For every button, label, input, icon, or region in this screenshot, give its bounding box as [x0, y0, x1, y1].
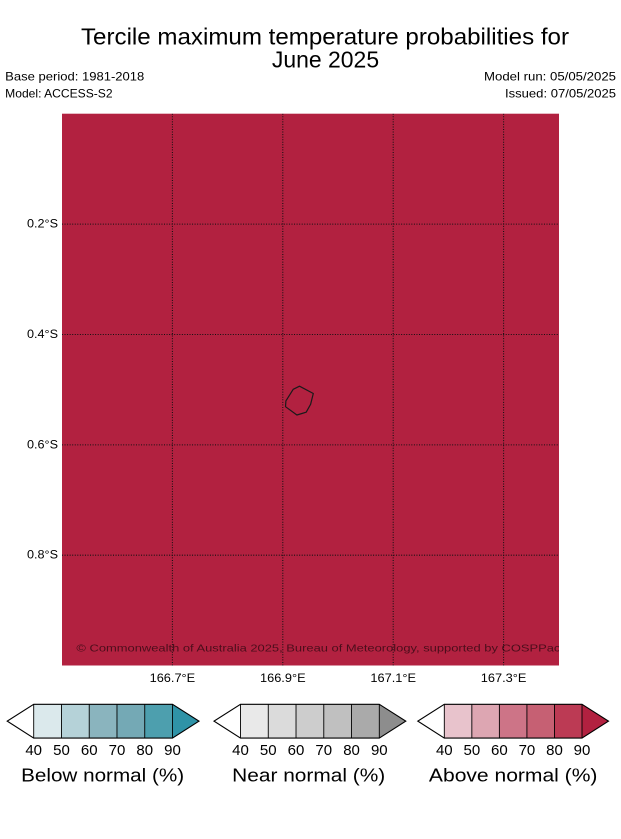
svg-text:166.9°E: 166.9°E: [260, 671, 306, 685]
svg-text:0.4°S: 0.4°S: [27, 327, 58, 341]
svg-text:40: 40: [232, 742, 249, 759]
svg-text:60: 60: [288, 742, 305, 759]
svg-text:167.1°E: 167.1°E: [370, 671, 416, 685]
svg-text:© Commonwealth of Australia 20: © Commonwealth of Australia 2025, Bureau…: [76, 644, 560, 655]
svg-text:0.8°S: 0.8°S: [27, 548, 58, 562]
svg-text:60: 60: [81, 742, 98, 759]
svg-text:0.2°S: 0.2°S: [27, 217, 58, 231]
svg-text:166.7°E: 166.7°E: [150, 671, 196, 685]
svg-text:80: 80: [546, 742, 563, 759]
svg-text:Near normal (%): Near normal (%): [232, 766, 385, 787]
svg-text:50: 50: [260, 742, 277, 759]
svg-text:50: 50: [53, 742, 70, 759]
svg-text:40: 40: [25, 742, 42, 759]
svg-text:70: 70: [519, 742, 536, 759]
svg-text:80: 80: [343, 742, 360, 759]
svg-text:167.3°E: 167.3°E: [481, 671, 527, 685]
svg-text:50: 50: [463, 742, 480, 759]
svg-text:Model run: 05/05/2025: Model run: 05/05/2025: [484, 70, 616, 84]
svg-text:Base period: 1981-2018: Base period: 1981-2018: [5, 70, 144, 84]
svg-text:Model: ACCESS-S2: Model: ACCESS-S2: [5, 87, 113, 101]
svg-text:90: 90: [164, 742, 181, 759]
svg-text:60: 60: [491, 742, 508, 759]
svg-text:Issued: 07/05/2025: Issued: 07/05/2025: [505, 87, 616, 101]
svg-text:90: 90: [574, 742, 591, 759]
svg-text:Above normal (%): Above normal (%): [429, 766, 598, 787]
svg-text:Below normal (%): Below normal (%): [21, 766, 184, 787]
svg-text:70: 70: [315, 742, 332, 759]
svg-text:40: 40: [436, 742, 453, 759]
svg-text:90: 90: [371, 742, 388, 759]
svg-text:0.6°S: 0.6°S: [27, 437, 58, 451]
svg-text:June 2025: June 2025: [272, 47, 379, 73]
svg-text:70: 70: [109, 742, 126, 759]
svg-text:80: 80: [136, 742, 153, 759]
svg-text:Tercile maximum temperature pr: Tercile maximum temperature probabilitie…: [81, 24, 569, 50]
